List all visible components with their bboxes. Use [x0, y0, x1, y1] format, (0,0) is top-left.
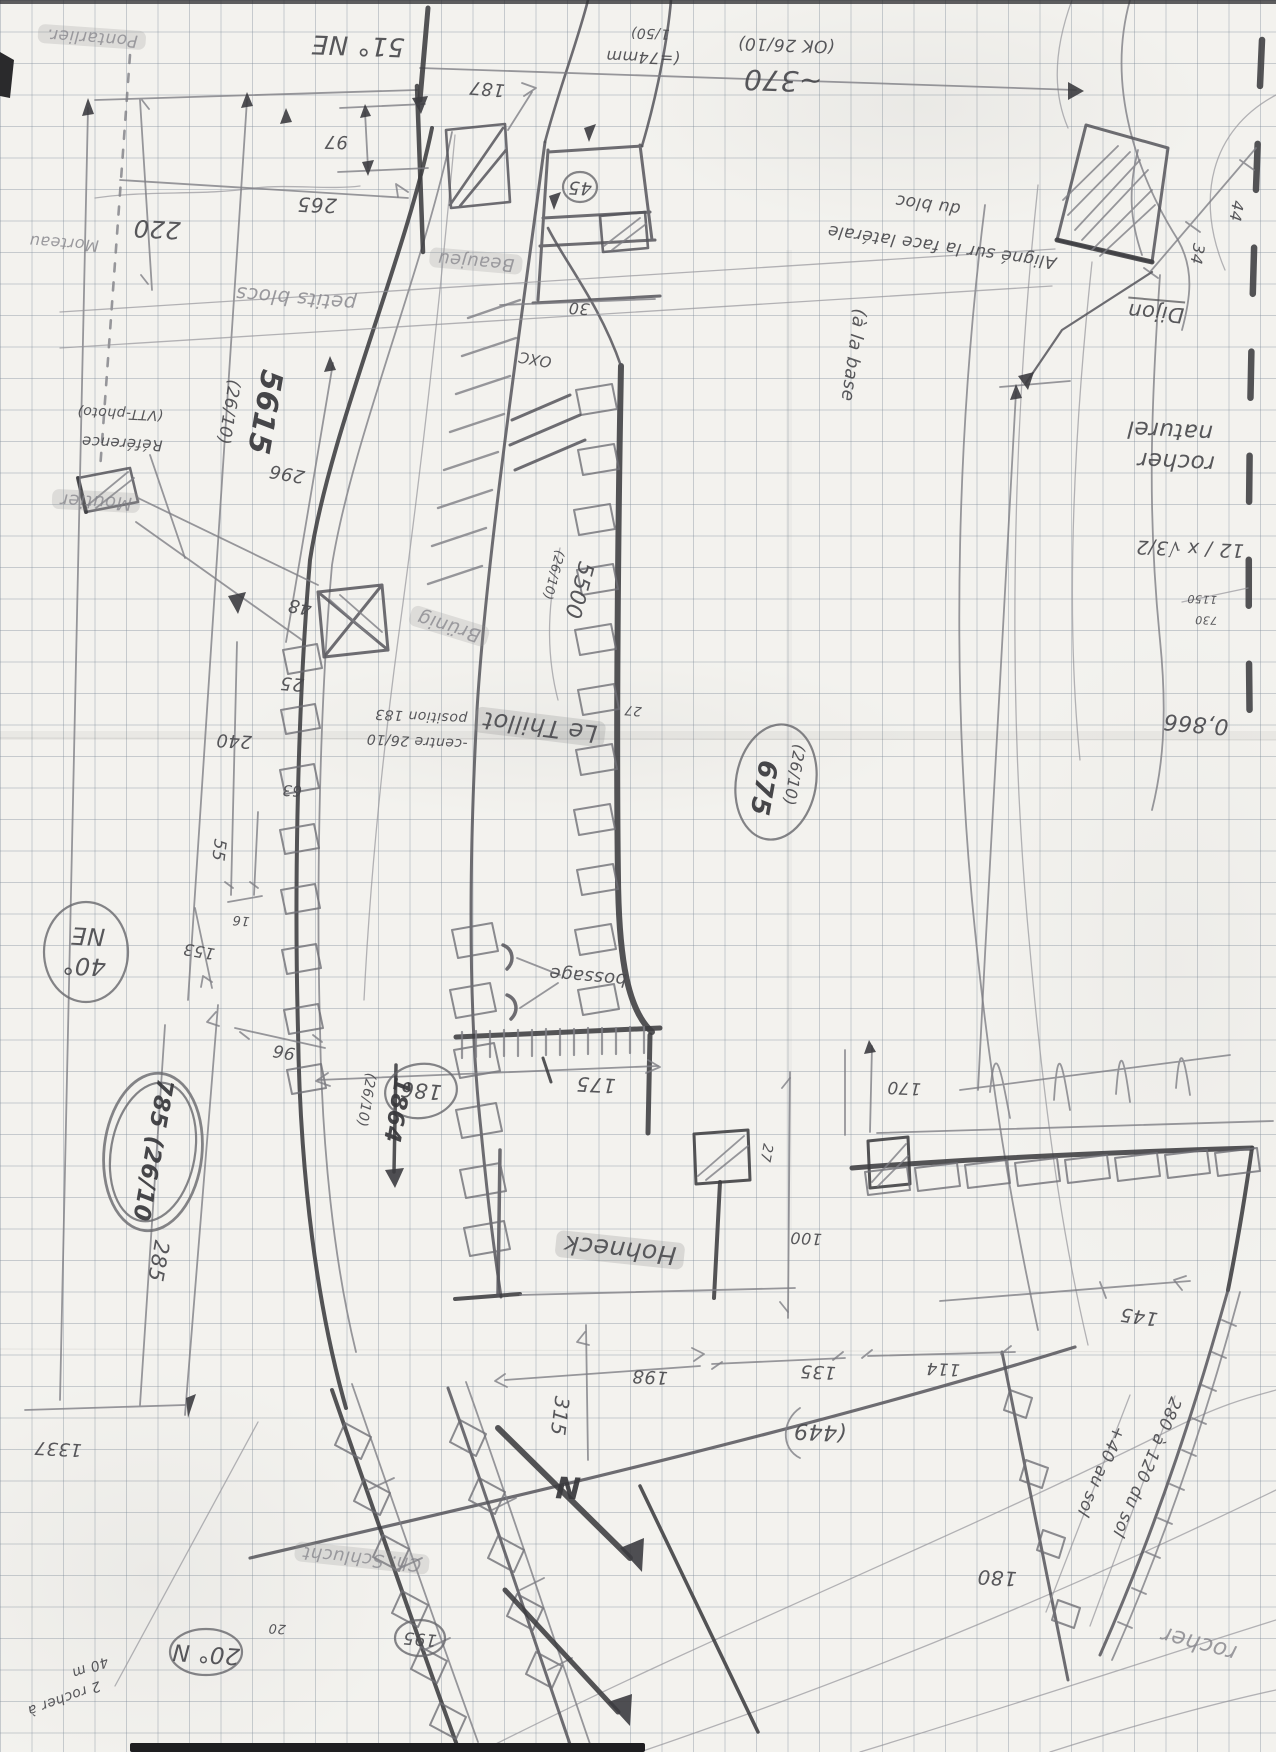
label-moutier: Moutier: [52, 489, 141, 514]
label-le-thillot: Le Thillot: [474, 706, 607, 748]
label-note-a-la-base: (à la base: [838, 307, 869, 402]
label-dim-16: 16: [232, 913, 251, 927]
label-ref-5615: 5615: [242, 367, 286, 456]
label-dim-97: 97: [324, 132, 348, 150]
label-pontarlier: Pontarlier.: [38, 24, 147, 50]
label-calc-sqrt: 12 / x √3/2: [1136, 537, 1245, 560]
label-dim-296: 296: [268, 461, 306, 485]
label-dim-145: 145: [1119, 1304, 1159, 1328]
label-note-reference: Référence: [81, 433, 163, 452]
label-note-centre: -centre 26/10: [366, 731, 468, 750]
label-dim-27-wall: 27: [624, 703, 643, 717]
label-dim-96: 96: [271, 1041, 296, 1062]
label-beaujeu: Beaujeu: [429, 247, 523, 275]
label-dim-48: 48: [287, 595, 314, 617]
label-scale-74mm: (=74mm: [606, 48, 681, 67]
label-bearing-ne: NE: [70, 923, 105, 949]
label-note-oxc: OXC: [517, 349, 552, 370]
label-hohneck: Hohneck: [554, 1230, 685, 1270]
label-dim-135: 135: [800, 1361, 837, 1381]
label-dim-449: (449: [793, 1419, 847, 1444]
annotation-labels: Pontarlier.Morteau22051° NE18797265(=74m…: [0, 0, 1276, 1752]
label-note-aligne: Aligné sur la face latérale: [826, 222, 1057, 271]
label-dim-315: 315: [548, 1395, 573, 1437]
label-dim-27-gap: 27: [757, 1143, 774, 1164]
label-petits-blocs: petits blocs: [235, 284, 357, 314]
label-dim-30: 30: [568, 299, 590, 316]
label-ref-5615-date: (26/10): [214, 378, 242, 446]
label-dim-285: 285: [144, 1239, 172, 1284]
label-dim-44: 44: [1226, 199, 1245, 223]
label-dijon: Dijon: [1127, 297, 1185, 326]
label-calc-1150: 1150: [1187, 593, 1217, 605]
label-dim-195: 195: [402, 1628, 437, 1648]
label-ref-5500-date: (26/10): [540, 549, 566, 602]
label-dim-55: 55: [208, 838, 228, 863]
label-rocher-naturel-1: rocher: [1137, 447, 1215, 474]
label-dim-198: 198: [632, 1366, 669, 1386]
label-ok-2610: (OK 26/10): [737, 34, 835, 54]
label-ref-675-date: (26/10): [781, 743, 808, 807]
label-dim-34: 34: [1187, 242, 1206, 266]
label-ref-1864-date: (26/10): [354, 1072, 377, 1128]
label-note-40m: 40 m: [70, 1654, 110, 1680]
label-bearing-20n: 20° N: [171, 1639, 240, 1667]
label-ref-675: 675: [745, 758, 780, 817]
label-dim-1337: 1337: [34, 1438, 83, 1458]
label-dim-25: 25: [279, 673, 304, 693]
label-scale-150: 1/50): [630, 25, 670, 40]
label-dim-170: 170: [887, 1078, 922, 1097]
label-dim-220: 220: [133, 216, 182, 242]
label-calc-730: 730: [1195, 614, 1218, 626]
sketch-page: Pontarlier.Morteau22051° NE18797265(=74m…: [0, 0, 1276, 1752]
label-dim-175: 175: [576, 1074, 617, 1096]
label-calc-0866: 0,866: [1162, 709, 1229, 737]
label-dim-240: 240: [216, 730, 253, 750]
label-note-bossage: bossage: [548, 964, 628, 989]
label-ref-1864: 1864: [379, 1075, 413, 1144]
label-morteau: Morteau: [29, 233, 100, 254]
label-rocher-naturel-2: naturel: [1127, 416, 1214, 443]
label-ref-785: 785 (26/10: [128, 1077, 176, 1223]
label-rocher-sud: rocher: [1159, 1622, 1240, 1664]
label-note-vtt-photo: (VTT-photo): [76, 404, 163, 423]
label-ref-5500: 5500: [560, 559, 596, 621]
label-schlucht: Ch. Schlucht: [294, 1541, 430, 1575]
label-note-2-rocher: 2 rocher à: [26, 1678, 103, 1717]
label-bearing-40: 40°: [61, 953, 106, 979]
label-note-280: 280 à 120 du sol: [1109, 1394, 1183, 1539]
label-dim-180: 180: [977, 1567, 1018, 1589]
label-dim-370: ~370: [743, 65, 823, 96]
label-note-position: position 183: [374, 707, 467, 726]
label-north: N: [554, 1470, 581, 1501]
label-dim-153: 153: [182, 940, 216, 961]
label-dim-265: 265: [297, 194, 337, 215]
label-dim-20: 20: [268, 1621, 286, 1635]
label-dim-114: 114: [926, 1359, 961, 1378]
label-brunig: Brünig: [407, 604, 491, 648]
label-dim-100: 100: [790, 1229, 823, 1247]
label-dim-63: 63: [282, 782, 303, 798]
label-dim-187: 187: [468, 77, 505, 98]
label-note-du-bloc: du bloc: [894, 191, 961, 217]
label-bearing-51ne: 51° NE: [311, 30, 405, 59]
label-dim-45: 45: [568, 177, 593, 196]
